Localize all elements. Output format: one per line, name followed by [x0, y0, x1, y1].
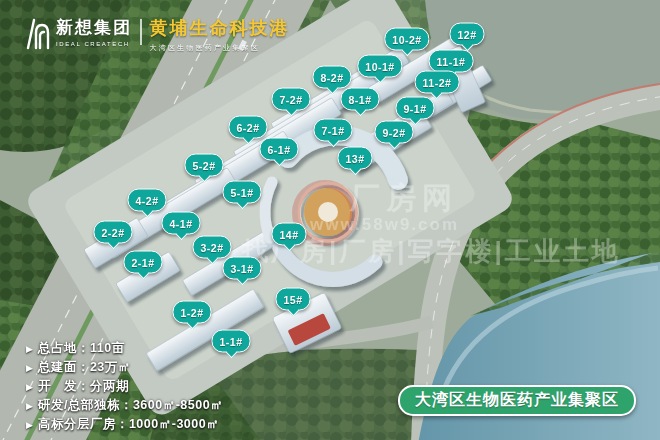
- building-label-10-1: 10-1#: [357, 55, 402, 78]
- building-label-9-2: 9-2#: [374, 121, 413, 144]
- building-label-11-2: 11-2#: [415, 71, 460, 94]
- building-label-13: 13#: [337, 147, 372, 170]
- page-subtitle: 大湾区生物医药产业集聚区: [150, 43, 290, 53]
- building-label-2-1: 2-1#: [123, 251, 162, 274]
- building-label-10-2: 10-2#: [384, 28, 429, 51]
- building-label-7-2: 7-2#: [271, 88, 310, 111]
- building-label-12: 12#: [449, 23, 484, 46]
- cluster-banner: 大湾区生物医药产业集聚区: [398, 385, 636, 416]
- triangle-bullet-icon: ▶: [26, 344, 33, 354]
- triangle-bullet-icon: ▶: [26, 401, 33, 411]
- title-block: 黄埔生命科技港 大湾区生物医药产业集聚区: [150, 16, 290, 53]
- building-label-1-2: 1-2#: [172, 301, 211, 324]
- building-label-3-1: 3-1#: [222, 257, 261, 280]
- building-label-7-1: 7-1#: [313, 119, 352, 142]
- brand-name-en: IDEAL CREATECH: [56, 41, 132, 47]
- building-label-5-1: 5-1#: [222, 181, 261, 204]
- building-label-2-2: 2-2#: [93, 221, 132, 244]
- building-label-11-1: 11-1#: [429, 50, 474, 73]
- cluster-banner-text: 大湾区生物医药产业集聚区: [415, 390, 619, 411]
- triangle-bullet-icon: ▶: [26, 363, 33, 373]
- brand-name: 新想集团: [56, 16, 132, 39]
- stat-factory-floors: ▶高标分层厂房：1000㎡-3000㎡: [26, 416, 223, 433]
- stats-panel: ▶总占地：110亩 ▶总建面：23万㎡ ▶开 发：分两期 ▶研发/总部独栋：36…: [26, 340, 223, 435]
- stat-rd-headquarters: ▶研发/总部独栋：3600㎡-8500㎡: [26, 397, 223, 414]
- stat-total-land: ▶总占地：110亩: [26, 340, 223, 357]
- triangle-bullet-icon: ▶: [26, 420, 33, 430]
- header: 新想集团 IDEAL CREATECH 黄埔生命科技港 大湾区生物医药产业集聚区: [24, 16, 290, 53]
- building-label-6-1: 6-1#: [259, 138, 298, 161]
- poster: 新想集团 IDEAL CREATECH 黄埔生命科技港 大湾区生物医药产业集聚区…: [0, 0, 660, 440]
- building-label-text: 11-1#: [437, 56, 466, 68]
- building-label-text: 11-2#: [423, 77, 452, 89]
- building-label-15: 15#: [275, 288, 310, 311]
- brand-logo-icon: [24, 18, 50, 50]
- stat-total-floor-area: ▶总建面：23万㎡: [26, 359, 223, 376]
- building-label-4-2: 4-2#: [127, 189, 166, 212]
- building-label-14: 14#: [271, 223, 306, 246]
- header-divider: [140, 19, 142, 45]
- page-title: 黄埔生命科技港: [150, 16, 290, 40]
- building-label-4-1: 4-1#: [161, 212, 200, 235]
- building-label-6-2: 6-2#: [228, 116, 267, 139]
- building-label-5-2: 5-2#: [184, 154, 223, 177]
- stat-development-phases: ▶开 发：分两期: [26, 378, 223, 395]
- building-label-9-1: 9-1#: [395, 97, 434, 120]
- building-label-8-2: 8-2#: [312, 66, 351, 89]
- building-label-8-1: 8-1#: [340, 88, 379, 111]
- brand-block: 新想集团 IDEAL CREATECH: [56, 16, 132, 47]
- building-label-3-2: 3-2#: [192, 236, 231, 259]
- triangle-bullet-icon: ▶: [26, 382, 33, 392]
